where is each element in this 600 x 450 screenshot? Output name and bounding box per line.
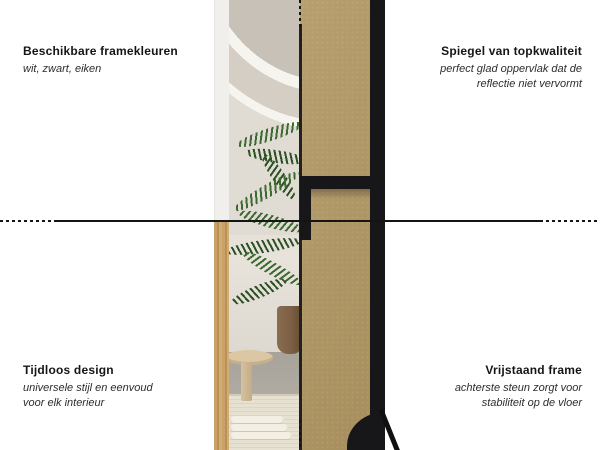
wooden-stool-leg <box>241 362 252 401</box>
towel-stack <box>231 416 283 423</box>
vertical-divider-dashed-top <box>299 0 301 27</box>
mirror-back-view <box>299 0 385 450</box>
vertical-divider-dashed-bottom <box>299 420 301 450</box>
product-feature-diagram: Beschikbare framekleuren wit, zwart, eik… <box>0 0 600 450</box>
annotation-title: Tijdloos design <box>23 363 163 377</box>
annotation-subtitle: achterste steun zorgt voor stabiliteit o… <box>447 381 582 411</box>
mirror-front-view <box>214 0 300 450</box>
horizontal-divider-dashed-left <box>0 220 57 222</box>
annotation-mirror-quality: Spiegel van topkwaliteit perfect glad op… <box>417 44 582 92</box>
annotation-frame-colors: Beschikbare framekleuren wit, zwart, eik… <box>23 44 203 77</box>
annotation-title: Vrijstaand frame <box>447 363 582 377</box>
towel-stack <box>231 424 287 431</box>
towel-stack <box>231 432 291 439</box>
annotation-freestanding-frame: Vrijstaand frame achterste steun zorgt v… <box>447 363 582 411</box>
horizontal-divider-dashed-right <box>540 220 600 222</box>
stand-crossbar-corner <box>300 182 311 240</box>
annotation-subtitle: perfect glad oppervlak dat de reflectie … <box>417 62 582 92</box>
annotation-timeless-design: Tijdloos design universele stijl en eenv… <box>23 363 163 411</box>
annotation-title: Beschikbare framekleuren <box>23 44 203 58</box>
annotation-subtitle: universele stijl en eenvoud voor elk int… <box>23 381 163 411</box>
horizontal-divider-solid <box>57 220 540 222</box>
annotation-subtitle: wit, zwart, eiken <box>23 62 203 77</box>
mirror-glass-reflection <box>229 0 300 450</box>
plant-pot <box>277 306 300 354</box>
stand-vertical-bar <box>370 0 385 450</box>
mirror-frame-oak <box>214 221 230 450</box>
annotation-title: Spiegel van topkwaliteit <box>417 44 582 58</box>
